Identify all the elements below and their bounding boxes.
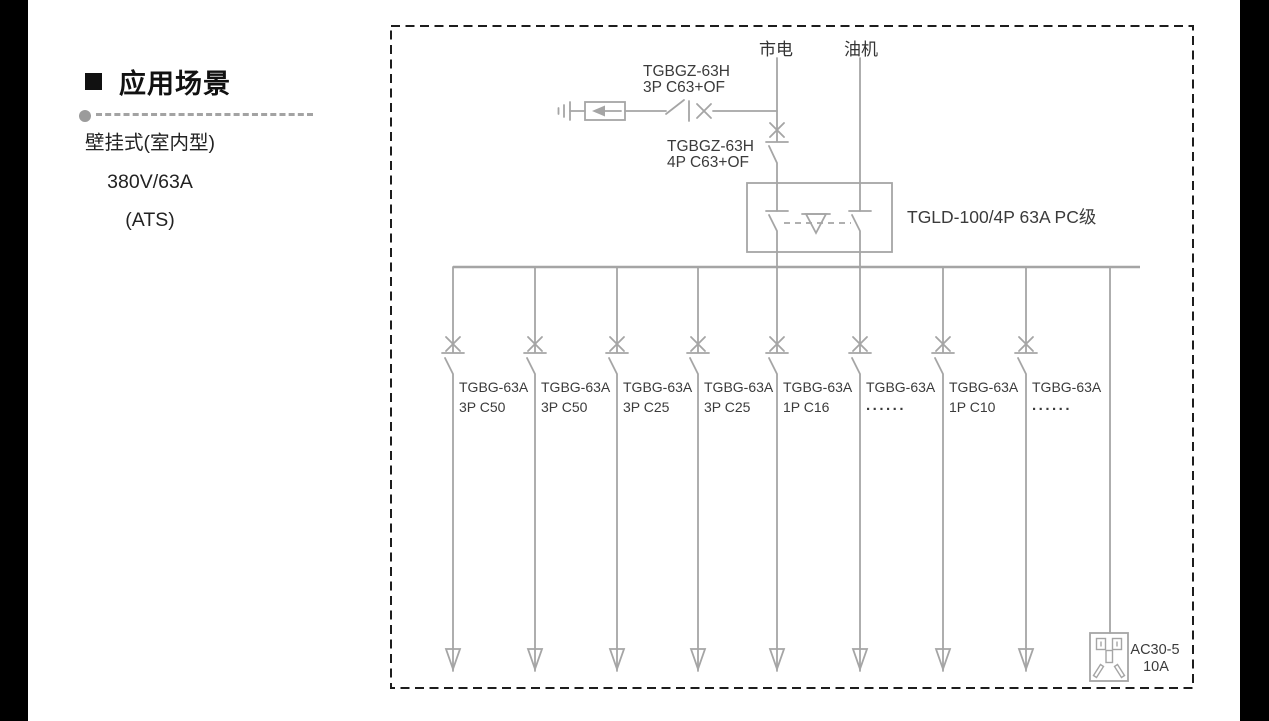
branch-circuit-1: TGBG-63A 3P C50 bbox=[442, 267, 529, 671]
svg-text:3P C63+OF: 3P C63+OF bbox=[643, 79, 725, 96]
svg-text:TGBG-63A: TGBG-63A bbox=[623, 379, 693, 395]
svg-text:TGBG-63A: TGBG-63A bbox=[783, 379, 853, 395]
ground-icon bbox=[559, 102, 571, 120]
page: 应用场景 壁挂式(室内型) 380V/63A (ATS) 市电 油机 bbox=[0, 0, 1269, 721]
breaker-lever-icon bbox=[666, 100, 684, 114]
svg-text:3P C50: 3P C50 bbox=[459, 399, 506, 415]
branch-circuit-3: TGBG-63A 3P C25 bbox=[606, 267, 693, 671]
branch-circuit-8: TGBG-63A ...... bbox=[1015, 267, 1102, 671]
svg-text:4P C63+OF: 4P C63+OF bbox=[667, 154, 749, 171]
breaker-x-icon bbox=[697, 104, 711, 118]
svg-text:TGBG-63A: TGBG-63A bbox=[459, 379, 529, 395]
svg-text:TGBG-63A: TGBG-63A bbox=[1032, 379, 1102, 395]
svg-text:3P C25: 3P C25 bbox=[704, 399, 751, 415]
svg-text:3P C50: 3P C50 bbox=[541, 399, 588, 415]
branch-circuit-7: TGBG-63A 1P C10 bbox=[932, 267, 1019, 671]
socket-icon bbox=[1090, 633, 1128, 681]
spd-breaker-label: TGBGZ-63H 3P C63+OF bbox=[643, 63, 730, 96]
generator-source-label: 油机 bbox=[844, 40, 878, 59]
ats-switch-box bbox=[747, 183, 892, 267]
diagram-dashed-border bbox=[391, 26, 1193, 688]
socket-model-label: AC30-5 bbox=[1130, 642, 1179, 658]
branch-circuit-4: TGBG-63A 3P C25 bbox=[687, 267, 774, 671]
svg-text:TGBGZ-63H: TGBGZ-63H bbox=[667, 138, 754, 155]
svg-text:TGBG-63A: TGBG-63A bbox=[949, 379, 1019, 395]
svg-text:TGBG-63A: TGBG-63A bbox=[866, 379, 936, 395]
branch-circuit-2: TGBG-63A 3P C50 bbox=[524, 267, 611, 671]
socket-rating-label: 10A bbox=[1143, 659, 1169, 675]
svg-text:1P C16: 1P C16 bbox=[783, 399, 830, 415]
arrester-arrow-icon bbox=[592, 106, 605, 117]
mains-source-label: 市电 bbox=[759, 40, 793, 59]
svg-text:1P C10: 1P C10 bbox=[949, 399, 996, 415]
ats-label: TGLD-100/4P 63A PC级 bbox=[907, 207, 1096, 227]
mains-feeder-line bbox=[766, 58, 788, 211]
single-line-diagram: 市电 油机 TGBGZ-63H 3P C63+OF TGBG bbox=[0, 0, 1269, 721]
spd-branch bbox=[559, 100, 778, 121]
branch-circuit-5: TGBG-63A 1P C16 bbox=[766, 267, 853, 671]
main-breaker-label: TGBGZ-63H 4P C63+OF bbox=[667, 138, 754, 171]
svg-text:3P C25: 3P C25 bbox=[623, 399, 670, 415]
svg-text:......: ...... bbox=[866, 397, 906, 414]
svg-text:TGBGZ-63H: TGBGZ-63H bbox=[643, 63, 730, 80]
branch-circuit-6: TGBG-63A ...... bbox=[849, 267, 936, 671]
svg-text:TGBG-63A: TGBG-63A bbox=[541, 379, 611, 395]
svg-text:......: ...... bbox=[1032, 397, 1072, 414]
svg-text:TGBG-63A: TGBG-63A bbox=[704, 379, 774, 395]
socket-branch: AC30-5 10A bbox=[1090, 267, 1180, 681]
